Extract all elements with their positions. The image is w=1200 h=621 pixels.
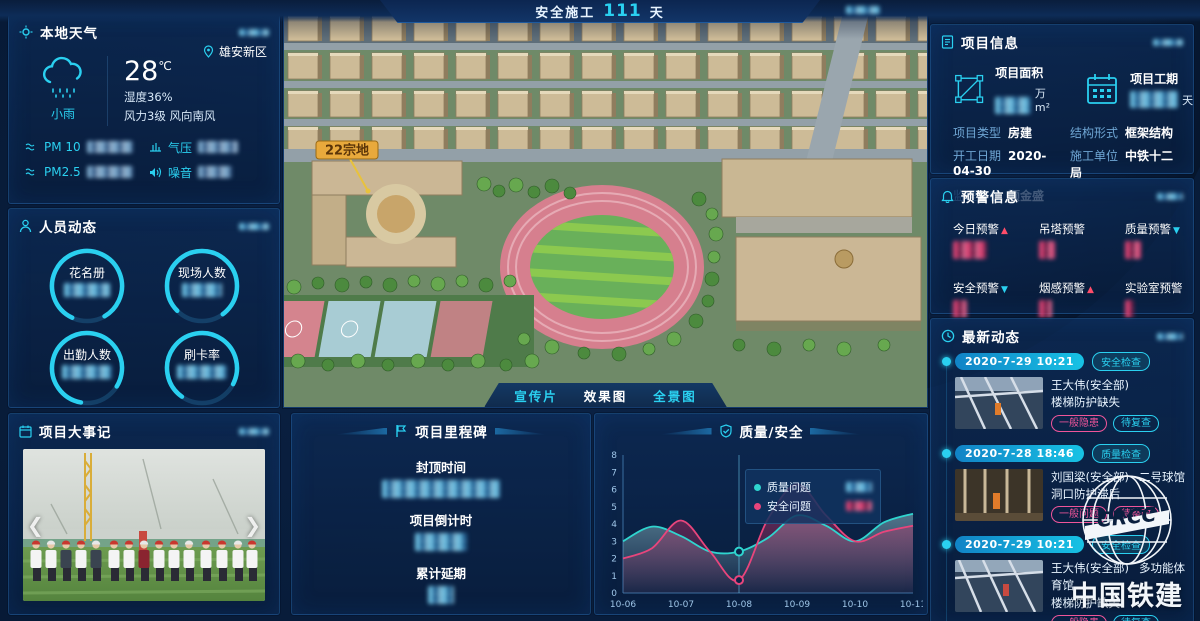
masked-title-chip [239, 428, 269, 435]
gauge-label: 现场人数 [158, 264, 246, 281]
rain-cloud-icon [37, 56, 89, 98]
masked-gauge-value [62, 365, 112, 379]
title-decor [810, 428, 862, 435]
svg-text:10-09: 10-09 [784, 600, 810, 610]
warning-today: 今日预警▲ [953, 218, 1039, 263]
trend-up-icon: ▲ [1087, 285, 1094, 295]
event-photo: ❮ ❯ [23, 449, 265, 601]
masked-delay [428, 586, 454, 604]
pressure-label: 气压 [168, 139, 192, 156]
timeline-dot [942, 449, 951, 458]
masked-title-chip [239, 223, 269, 230]
person-icon [19, 219, 32, 233]
stat-area-label: 项目面积 [995, 64, 1058, 81]
gauge-attendance: 出勤人数 [43, 328, 131, 402]
warnings-panel: 预警信息 今日预警▲ 吊塔预警 质量预警▼ 安全预警▼ 烟感预警▲ 实验室预警 [930, 178, 1194, 314]
safety-days-label: 安全施工 [535, 2, 595, 21]
masked-warning-value [1125, 300, 1134, 318]
svg-text:2: 2 [611, 555, 617, 565]
masked-duration-value [1130, 91, 1178, 108]
crcc-logo: CRCC 中国铁建 [1056, 470, 1198, 613]
events-title: 项目大事记 [39, 421, 112, 441]
warning-lab: 实验室预警 [1125, 277, 1200, 322]
title-decor [335, 428, 387, 435]
masked-noise-value [198, 166, 232, 178]
svg-text:6: 6 [611, 486, 617, 496]
safety-days-unit: 天 [650, 2, 665, 21]
svg-text:10-11: 10-11 [900, 600, 923, 610]
pm25-icon [25, 167, 38, 177]
weather-condition: 小雨 [27, 105, 99, 122]
masked-warning-value [1125, 241, 1141, 259]
masked-pm25-value [87, 166, 133, 178]
site-label: 22宗地 [325, 143, 369, 159]
title-decor [495, 428, 547, 435]
temp-unit: ℃ [158, 59, 171, 73]
legend-dot-safety [754, 503, 761, 510]
warnings-title: 预警信息 [961, 186, 1019, 206]
location-pin-icon [203, 45, 214, 58]
stat-area: 项目面积 万m² [953, 64, 1058, 114]
site-3d-view: 22宗地 宣传片 效果图 全景图 [283, 8, 928, 408]
svg-text:4: 4 [611, 520, 617, 530]
masked-warning-value [953, 300, 967, 318]
masked-topping-date [382, 480, 500, 498]
feed-thumbnail [955, 560, 1043, 612]
feed-title: 最新动态 [962, 326, 1020, 346]
masked-pressure-value [198, 141, 238, 153]
stat-duration-label: 项目工期 [1130, 70, 1193, 87]
location-label: 雄安新区 [219, 43, 267, 60]
view-button-promo[interactable]: 宣传片 [514, 386, 558, 405]
humidity: 湿度36% [124, 89, 215, 106]
masked-tooltip-value [846, 482, 872, 492]
quality-safety-panel: 质量/安全 01234567810-0610-0710-0810-0910-10… [594, 413, 928, 615]
calendar-icon [1084, 71, 1120, 107]
timeline-dot [942, 357, 951, 366]
pm25-label: PM2.5 [44, 165, 81, 179]
gauge-label: 刷卡率 [158, 346, 246, 363]
noise-label: 噪音 [168, 164, 192, 181]
info-row-type: 项目类型房建 [953, 124, 1066, 141]
gauge-swipe-rate: 刷卡率 [158, 328, 246, 402]
masked-warning-value [953, 241, 987, 259]
milestone-field-label: 封顶时间 [416, 457, 466, 476]
gauge-roster: 花名册 [43, 246, 131, 320]
feed-thumbnail [955, 469, 1043, 521]
groundbreaking-photo [23, 449, 265, 601]
masked-gauge-value [64, 283, 110, 297]
masked-countdown [415, 533, 467, 551]
pm10-icon [25, 142, 38, 152]
masked-gauge-value [182, 283, 222, 297]
milestone-panel: 项目里程碑 封顶时间 项目倒计时 累计延期 [291, 413, 591, 615]
view-switcher: 宣传片 效果图 全景图 [484, 383, 727, 407]
status-tag: 待复查 [1113, 415, 1159, 432]
document-icon [941, 35, 954, 49]
svg-text:5: 5 [611, 503, 617, 513]
safety-days-value: 111 [603, 1, 642, 21]
clock-icon [941, 329, 955, 343]
milestone-field-label: 累计延期 [416, 563, 466, 582]
masked-warning-value [1039, 241, 1055, 259]
masked-title-chip [1157, 193, 1183, 200]
masked-area-value [995, 97, 1031, 114]
info-row-structure: 结构形式框架结构 [1070, 124, 1183, 141]
title-decor [660, 428, 712, 435]
gauge-onsite: 现场人数 [158, 246, 246, 320]
legend-safety: 安全问题 [767, 498, 811, 514]
chart-title: 质量/安全 [740, 421, 804, 441]
flag-icon [394, 424, 408, 438]
carousel-next-button[interactable]: ❯ [244, 513, 261, 537]
temperature: 28℃ [124, 56, 215, 87]
aerial-render: 22宗地 [284, 9, 927, 407]
area-icon [953, 71, 985, 107]
svg-text:10-07: 10-07 [668, 600, 694, 610]
noise-icon [149, 167, 162, 178]
svg-text:1: 1 [611, 572, 617, 582]
masked-gauge-value [177, 365, 227, 379]
crcc-globe-icon: CRCC [1075, 470, 1179, 570]
svg-text:10-06: 10-06 [610, 600, 636, 610]
personnel-panel: 人员动态 花名册 现场人数 出勤人数 刷卡率 [8, 208, 280, 408]
warning-safety: 安全预警▼ [953, 277, 1039, 322]
alarm-bell-icon [941, 189, 954, 203]
shield-check-icon [719, 424, 733, 438]
pm10-label: PM 10 [44, 140, 81, 154]
feed-type-badge: 安全检查 [1092, 352, 1150, 371]
project-info-panel: 项目信息 项目面积 万m² 项目工期 天 项目类型房建 结构形式框架结构 [930, 24, 1194, 174]
severity-tag: 一般隐患 [1051, 415, 1107, 432]
milestone-title: 项目里程碑 [415, 421, 488, 441]
chart-body: 01234567810-0610-0710-0810-0910-1010-11 … [599, 447, 927, 619]
project-info-title: 项目信息 [961, 32, 1019, 52]
sun-icon [19, 25, 33, 39]
milestone-field-label: 项目倒计时 [410, 510, 473, 529]
project-events-panel: 项目大事记 ❮ ❯ [8, 413, 280, 615]
svg-text:10-08: 10-08 [726, 600, 752, 610]
info-row-startdate: 开工日期2020-04-30 [953, 147, 1066, 181]
svg-text:10-10: 10-10 [842, 600, 868, 610]
safety-days-banner: 安全施工 111 天 [380, 0, 820, 23]
pressure-icon [149, 142, 162, 152]
gauge-label: 出勤人数 [43, 346, 131, 363]
masked-pm10-value [87, 141, 133, 153]
feed-thumbnail [955, 377, 1043, 429]
svg-text:8: 8 [611, 451, 617, 461]
weather-panel: 本地天气 雄安新区 小雨 28℃ 湿度36% 风力3级 风向南风 PM 10 [8, 14, 280, 204]
masked-title-chip [1153, 39, 1183, 46]
feed-item[interactable]: 2020-7-29 10:21安全检查 王大伟(安全部) 楼梯防护缺失 一般隐患… [941, 352, 1193, 444]
legend-dot-quality [754, 484, 761, 491]
status-tag: 待复查 [1113, 615, 1159, 621]
svg-text:3: 3 [611, 537, 617, 547]
svg-text:0: 0 [611, 589, 617, 599]
location-indicator: 雄安新区 [203, 43, 267, 60]
weather-title: 本地天气 [40, 22, 98, 42]
masked-title-chip [239, 29, 269, 36]
info-row-contractor: 施工单位中铁十二局 [1070, 147, 1183, 181]
stat-duration: 项目工期 天 [1084, 64, 1193, 114]
wind: 风力3级 风向南风 [124, 108, 215, 125]
stat-area-unit: 万m² [1035, 85, 1058, 114]
feed-person: 王大伟(安全部) [1051, 378, 1129, 392]
warning-crane: 吊塔预警 [1039, 218, 1125, 263]
view-button-render[interactable]: 效果图 [584, 386, 628, 405]
feed-datetime: 2020-7-28 18:46 [955, 445, 1084, 462]
view-button-panorama[interactable]: 全景图 [653, 386, 697, 405]
personnel-title: 人员动态 [39, 216, 97, 236]
top-header: 安全施工 111 天 [0, 0, 1200, 22]
warning-quality: 质量预警▼ [1125, 218, 1200, 263]
chart-tooltip: 质量问题 安全问题 [745, 469, 881, 524]
carousel-prev-button[interactable]: ❮ [27, 513, 44, 537]
feed-type-badge: 质量检查 [1092, 444, 1150, 463]
masked-warning-value [1039, 300, 1052, 318]
masked-title-chip [1157, 333, 1183, 340]
calendar-note-icon [19, 425, 32, 438]
masked-header-deco [846, 6, 880, 14]
stat-duration-unit: 天 [1182, 92, 1193, 108]
severity-tag: 一般隐患 [1051, 615, 1107, 621]
feed-issue: 楼梯防护缺失 [1051, 394, 1159, 411]
trend-down-icon: ▼ [1001, 285, 1008, 295]
dashboard-root: 安全施工 111 天 本地天气 雄安新区 小雨 28℃ [0, 0, 1200, 621]
trend-up-icon: ▲ [1001, 226, 1008, 236]
feed-datetime: 2020-7-29 10:21 [955, 353, 1084, 370]
timeline-dot [942, 540, 951, 549]
legend-quality: 质量问题 [767, 479, 811, 495]
gauge-label: 花名册 [43, 264, 131, 281]
crcc-name: 中国铁建 [1056, 574, 1198, 613]
warning-smoke: 烟感预警▲ [1039, 277, 1125, 322]
svg-text:7: 7 [611, 468, 617, 478]
trend-down-icon: ▼ [1173, 226, 1180, 236]
masked-tooltip-value [846, 501, 872, 511]
